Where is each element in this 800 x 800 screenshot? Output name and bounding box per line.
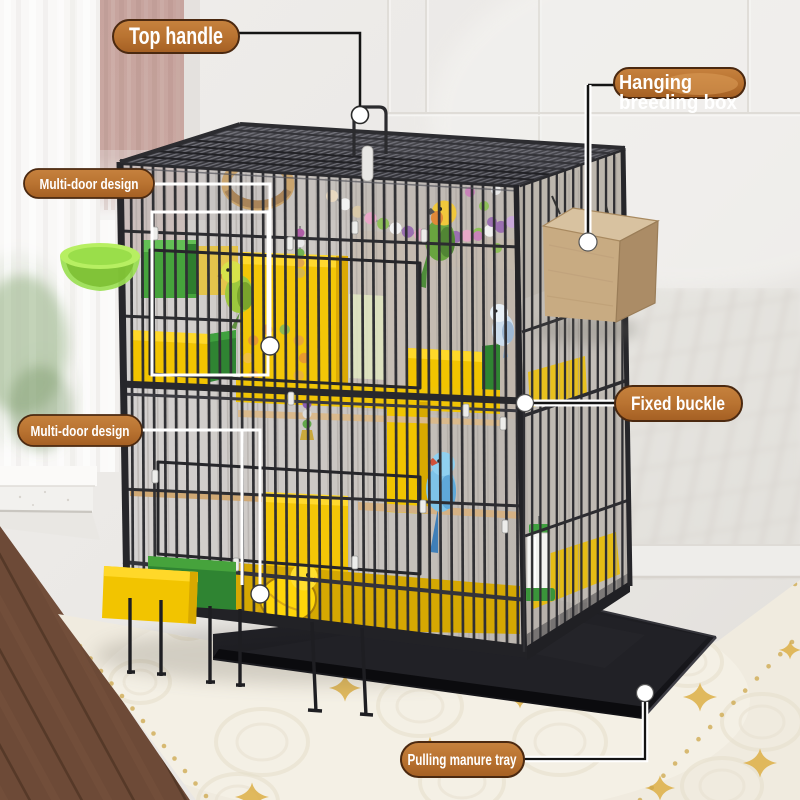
svg-text:Top handle: Top handle	[129, 23, 223, 50]
svg-text:Fixed buckle: Fixed buckle	[631, 394, 725, 415]
svg-text:breeding box: breeding box	[619, 92, 737, 114]
svg-text:Hanging: Hanging	[619, 72, 692, 94]
svg-text:Multi-door design: Multi-door design	[31, 423, 130, 440]
svg-text:Pulling manure tray: Pulling manure tray	[408, 752, 517, 769]
svg-text:Multi-door design: Multi-door design	[40, 176, 139, 193]
